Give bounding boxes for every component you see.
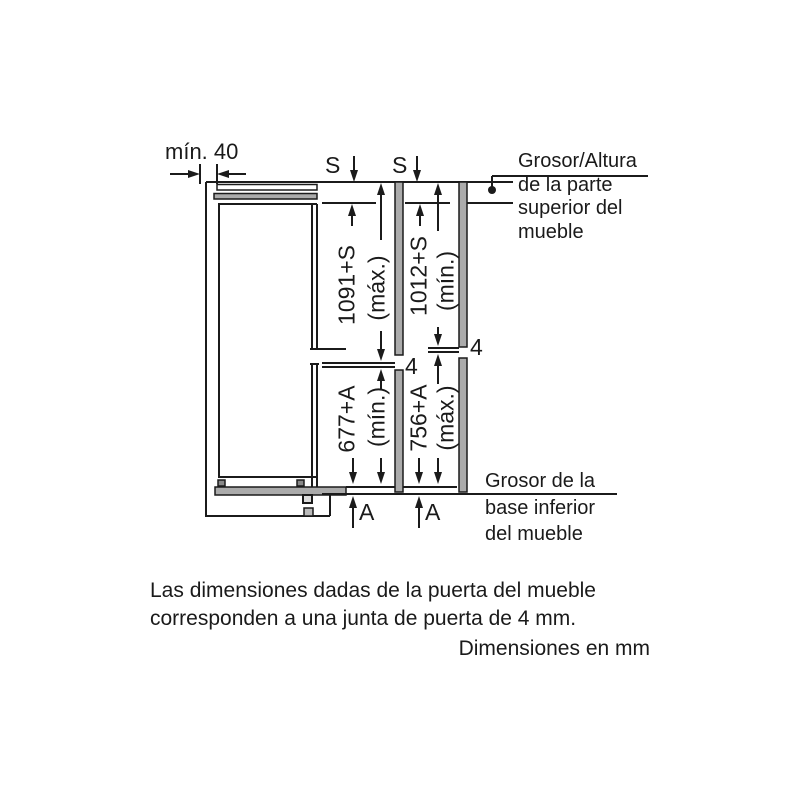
base-foot-upper (303, 495, 312, 503)
min-clearance-label: mín. 40 (165, 139, 238, 164)
bottom-arrow-1 (349, 472, 357, 484)
appliance-top-rail-1 (217, 185, 317, 191)
door-gap-label-right: 4 (470, 334, 483, 360)
appliance-foot-right (297, 480, 304, 486)
lower-right-top-arrow (434, 354, 442, 366)
upper-right-top-arrow (434, 183, 442, 195)
s-right-down-arrow (413, 170, 421, 182)
lower-door-max-dimension: 756+A (406, 384, 433, 451)
bottom-arrow-4 (434, 472, 442, 484)
s-right-up-arrow (416, 204, 424, 216)
furniture-door-right-upper (459, 182, 467, 347)
lower-left-top-arrow (377, 369, 385, 381)
base-panel-callout: Grosor de la base inferior del mueble (485, 468, 645, 548)
min40-arrowhead-right (188, 170, 200, 178)
top-callout-dot (488, 186, 496, 194)
lower-door-min-dimension: 677+A (334, 385, 361, 452)
upper-door-max-dimension: 1091+S (334, 245, 361, 325)
appliance-foot-left (218, 480, 225, 486)
door-gap-label-left: 4 (405, 353, 418, 379)
appliance-outline (214, 185, 346, 517)
upper-left-bottom-arrow (377, 349, 385, 361)
s-left-down-arrow (350, 170, 358, 182)
upper-door-max-qualifier: (máx.) (364, 255, 391, 320)
appliance-top-rail-2 (214, 194, 317, 200)
a-dimension-label-right: A (425, 499, 440, 525)
a-dimension-label-left: A (359, 499, 374, 525)
bottom-arrow-2 (377, 472, 385, 484)
upper-door-min-dimension: 1012+S (406, 236, 433, 316)
upper-door-min-qualifier: (mín.) (433, 251, 460, 311)
bottom-arrow-3 (415, 472, 423, 484)
s-dimension-label-right: S (392, 152, 407, 178)
door-gasket-note: Las dimensiones dadas de la puerta del m… (150, 577, 670, 633)
base-foot-lower (304, 508, 313, 516)
furniture-door-left-upper (395, 182, 403, 355)
s-left-up-arrow (348, 204, 356, 216)
lower-door-max-qualifier: (máx.) (433, 385, 460, 450)
min40-arrowhead-left (217, 170, 229, 178)
a-left-up-arrow (349, 496, 357, 508)
upper-left-top-arrow (377, 183, 385, 195)
installation-diagram-page: mín. 40 S S Grosor/Altura de la parte su… (0, 0, 800, 800)
furniture-door-right-lower (459, 358, 467, 492)
top-panel-callout: Grosor/Altura de la parte superior del m… (518, 150, 668, 244)
niche-dimension-drawing (0, 0, 800, 800)
units-note: Dimensiones en mm (350, 637, 650, 661)
lower-door-min-qualifier: (mín.) (364, 387, 391, 447)
upper-right-bottom-arrow (434, 334, 442, 346)
s-dimension-label-left: S (325, 152, 340, 178)
furniture-door-left-lower (395, 370, 403, 492)
a-right-up-arrow (415, 496, 423, 508)
